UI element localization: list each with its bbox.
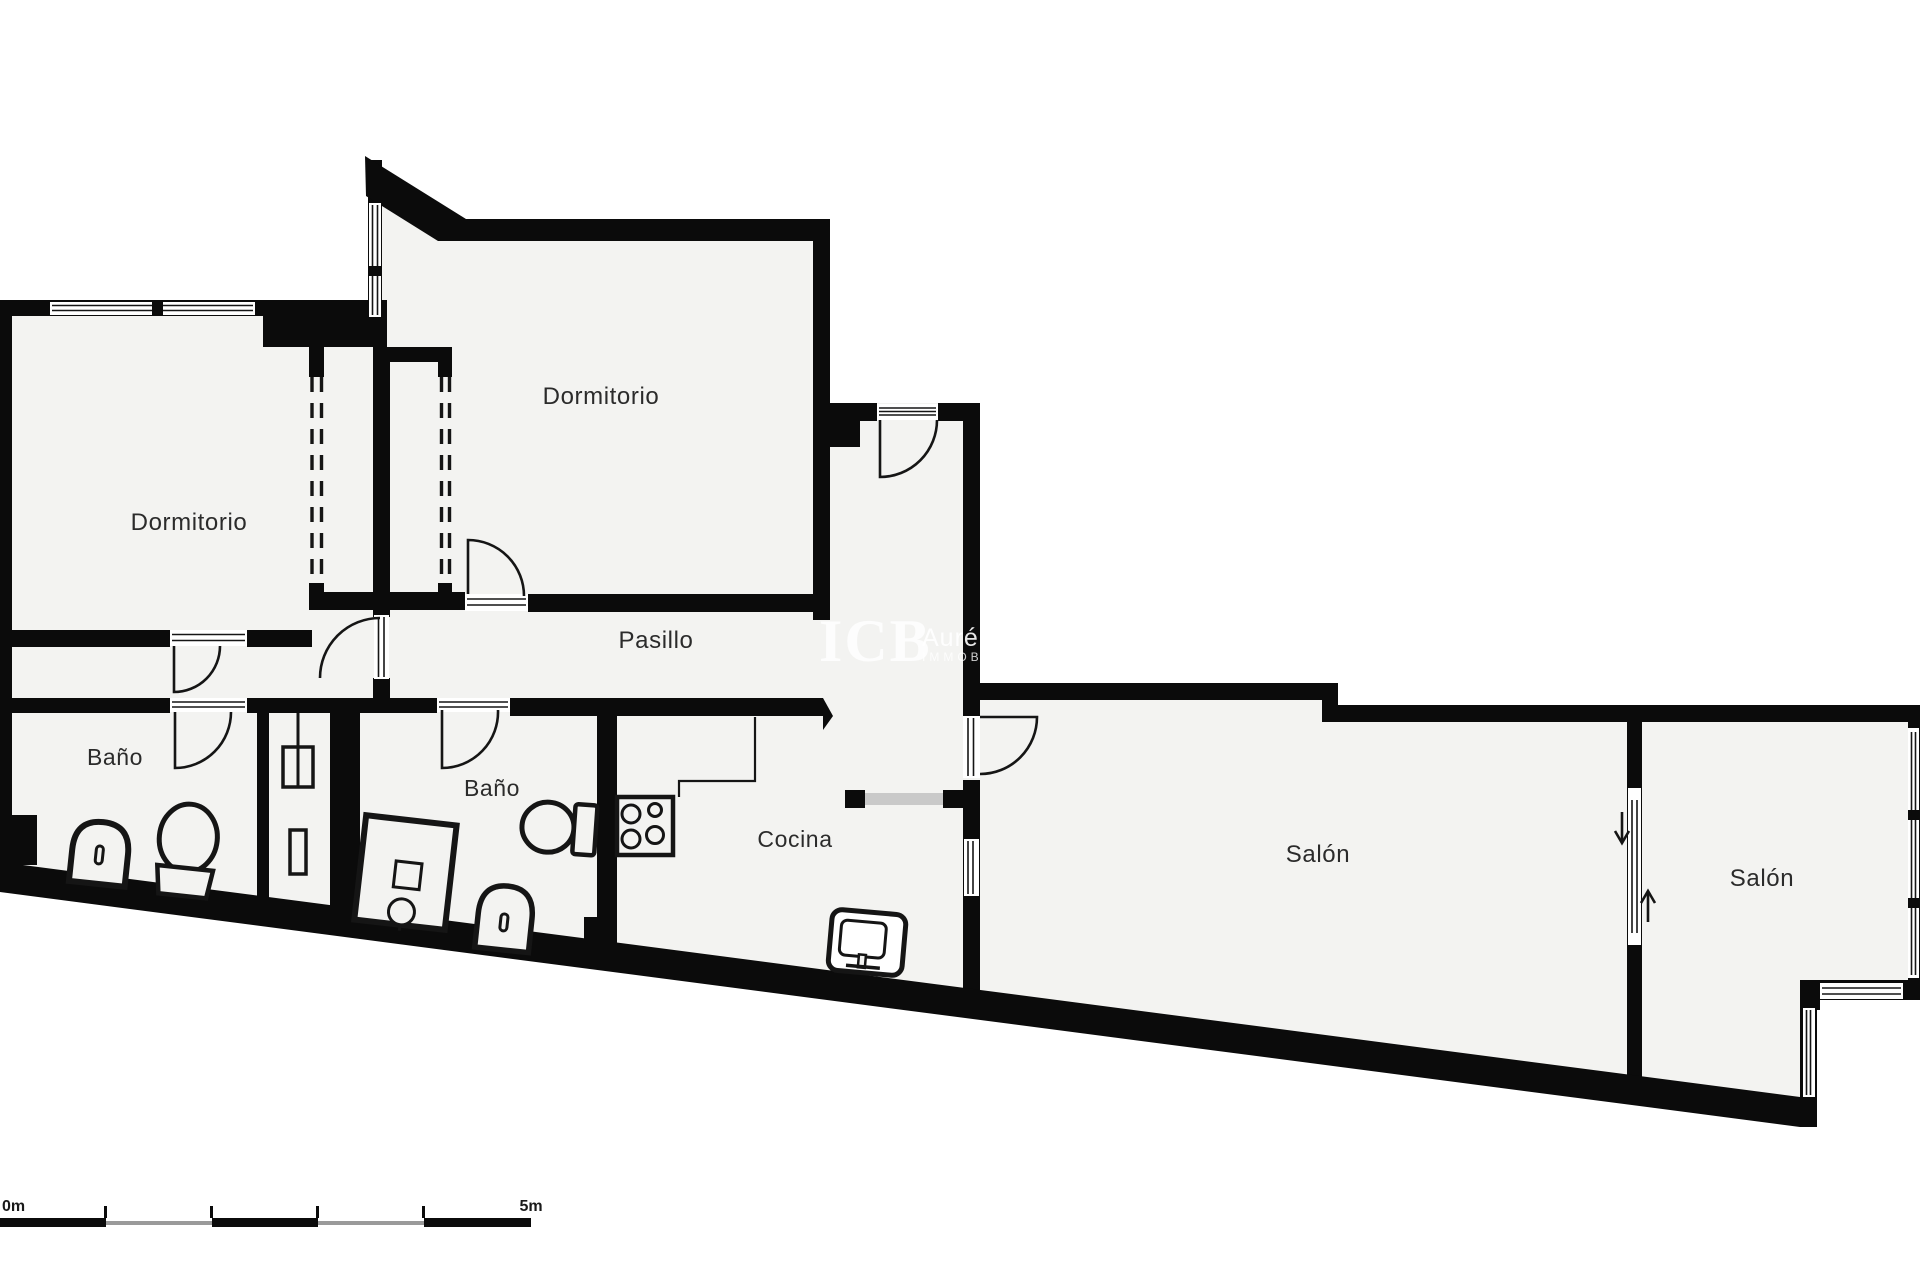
window-salon-right-south (1820, 983, 1903, 999)
watermark-subtitle: IMMOBILI (922, 650, 1008, 664)
watermark-logo: ICB (819, 608, 932, 674)
threshold-pasillo-divider (374, 615, 389, 679)
sink-icon (475, 883, 535, 952)
window-salon-right-east (1908, 728, 1919, 978)
kitchen-sink-icon (828, 909, 907, 976)
room-label-dormitorio-top: Dormitorio (543, 383, 660, 410)
room-label-bano-mid: Baño (464, 775, 520, 801)
threshold-dormitorio-top (465, 594, 528, 611)
threshold-salon (963, 716, 980, 778)
window-dormitorio-left (50, 302, 255, 315)
room-label-bano-left: Baño (87, 744, 143, 770)
window-cocina-salon (964, 839, 979, 896)
watermark-name: Auréli (922, 624, 992, 652)
scale-end-label: 5m (519, 1198, 542, 1215)
room-label-cocina: Cocina (757, 826, 832, 852)
floor-plan-drawing: Dormitorio Dormitorio Pasillo Baño Baño … (0, 0, 1920, 1280)
threshold-dormitorio-left (170, 630, 247, 646)
window-dormitorio-top (369, 203, 381, 317)
threshold-bano-mid (437, 698, 510, 712)
stove-icon (617, 797, 673, 855)
window-between-salons (1628, 788, 1641, 945)
room-label-salon-main: Salón (1286, 841, 1350, 868)
floor-plan-page: Dormitorio Dormitorio Pasillo Baño Baño … (0, 0, 1920, 1280)
room-label-dormitorio-left: Dormitorio (131, 509, 248, 536)
room-label-pasillo: Pasillo (619, 627, 694, 654)
room-label-salon-right: Salón (1730, 865, 1794, 892)
glazed-band-cocina (865, 793, 943, 805)
threshold-bano-left (170, 698, 247, 712)
scale-start-label: 0m (2, 1198, 25, 1215)
shower-icon (354, 815, 457, 936)
entry-door-threshold (877, 404, 938, 420)
window-salon-right-notch (1803, 1008, 1815, 1097)
sink-icon (69, 819, 131, 887)
toilet-icon (520, 800, 597, 855)
scale-bar: 0m 5m (0, 1198, 543, 1227)
